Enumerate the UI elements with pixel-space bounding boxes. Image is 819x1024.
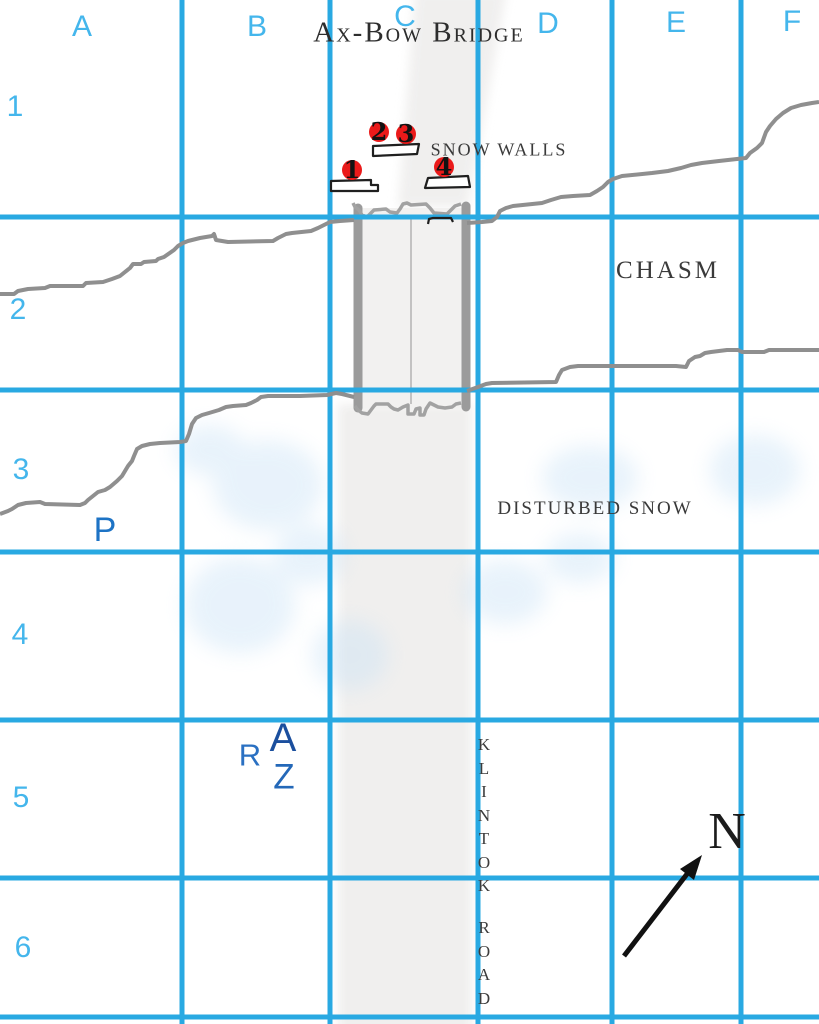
grid-col-label-f: F <box>783 7 801 37</box>
klintok-road-label-line1: KLINTOK <box>477 733 491 898</box>
grid-row-label-2: 2 <box>10 295 27 325</box>
chasm-edge-upper-right <box>467 102 819 223</box>
marker-3: 3 <box>396 124 416 144</box>
token-p: P <box>94 513 117 547</box>
chasm-edge-lower-right <box>467 350 819 391</box>
token-r: R <box>239 740 261 771</box>
map-title: Ax-Bow Bridge <box>313 17 524 50</box>
grid-row-label-3: 3 <box>13 455 30 485</box>
grid-row-label-1: 1 <box>7 92 24 122</box>
klintok-road-label-line2: ROAD <box>477 916 491 1010</box>
battle-map: Ax-Bow Bridge A B C D E F 1 2 3 4 5 6 SN… <box>0 0 819 1024</box>
grid-col-label-d: D <box>537 9 559 39</box>
marker-2: 2 <box>369 122 389 142</box>
grid-row-label-6: 6 <box>15 933 32 963</box>
token-a: A <box>270 718 297 758</box>
disturbed-snow-patches <box>175 425 800 690</box>
north-arrow-shaft <box>624 874 687 956</box>
grid-col-label-a: A <box>72 12 92 42</box>
road-lower-segment <box>338 404 472 1024</box>
grid-col-label-b: B <box>247 12 267 42</box>
compass-north-label: N <box>708 806 746 858</box>
grid-col-label-e: E <box>666 8 686 38</box>
marker-1-number: 1 <box>344 158 361 182</box>
chasm-edge-upper-left <box>0 220 354 294</box>
disturbed-snow-label: DISTURBED SNOW <box>497 498 692 520</box>
north-arrow <box>624 855 702 956</box>
marker-4: 4 <box>434 157 454 177</box>
grid-col-label-c: C <box>394 2 416 32</box>
chasm-label: CHASM <box>616 257 720 285</box>
marker-3-number: 3 <box>398 122 415 146</box>
token-z: Z <box>273 760 294 795</box>
map-graphics <box>0 0 819 1024</box>
grid-row-label-4: 4 <box>12 620 29 650</box>
marker-4-number: 4 <box>436 155 453 179</box>
marker-2-number: 2 <box>371 120 388 144</box>
marker-1: 1 <box>342 160 362 180</box>
grid-row-label-5: 5 <box>13 783 30 813</box>
